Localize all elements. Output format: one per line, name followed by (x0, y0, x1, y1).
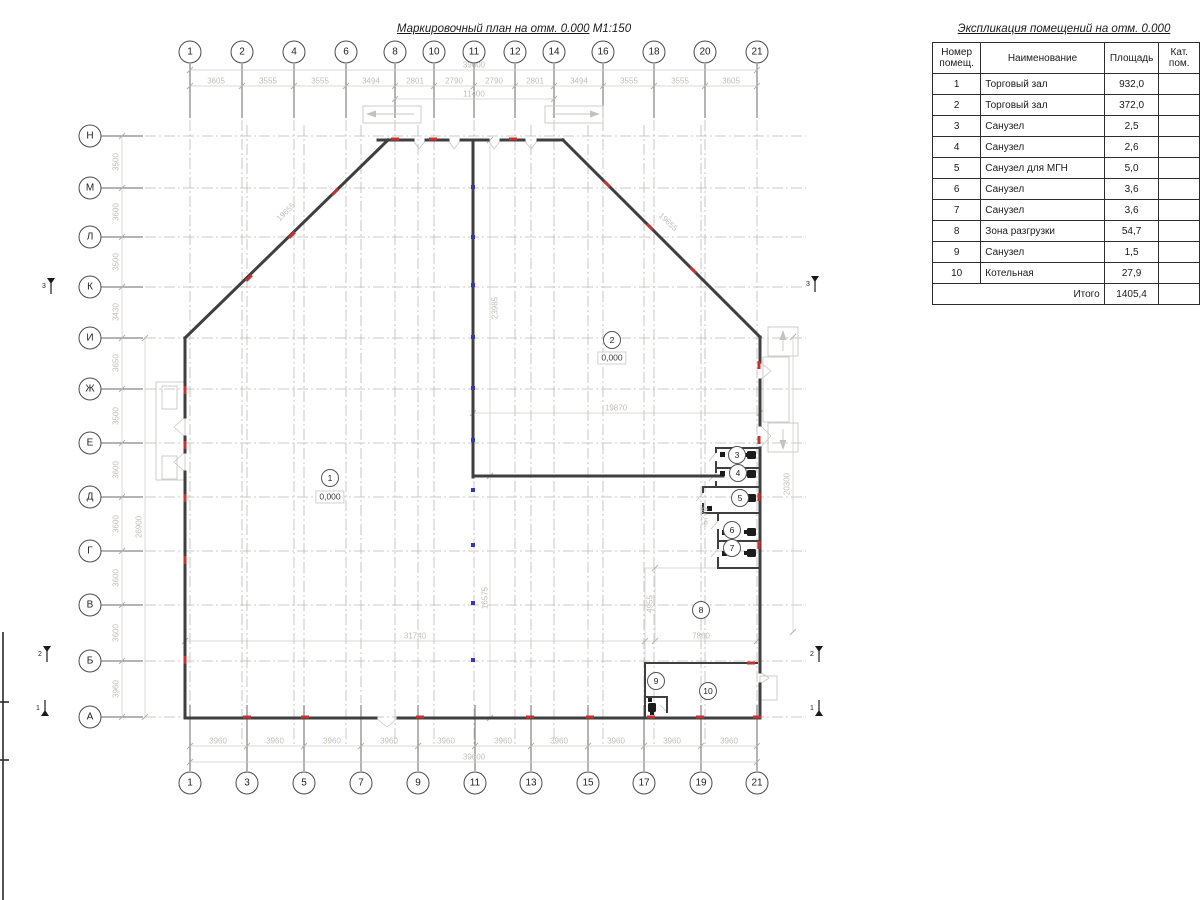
dim-label: 23985 (491, 297, 500, 319)
dim-label: 3600 (112, 515, 121, 533)
section-mark-arrow-icon (815, 646, 824, 662)
dim-label: 3960 (437, 737, 455, 746)
axis-bubble-bottom-3: 3 (236, 772, 259, 795)
column-marker-blue (471, 658, 475, 662)
axis-bubble-left-Н: Н (79, 125, 102, 148)
dim-label: 3960 (550, 737, 568, 746)
section-mark-number: 1 (810, 705, 814, 712)
wall-marker-red (747, 662, 755, 665)
grid-lines (101, 64, 806, 771)
dimension-lines (122, 70, 793, 762)
axis-bubble-top-14: 14 (543, 41, 566, 64)
section-mark-number: 2 (38, 651, 42, 658)
dim-label: 3650 (112, 354, 121, 372)
section-mark-arrow-icon (811, 276, 820, 292)
dim-label: 3555 (259, 77, 277, 86)
column-marker-blue (471, 235, 475, 239)
dim-label: 7860 (692, 632, 710, 641)
dim-label: 16575 (481, 587, 490, 609)
dim-label: 3600 (112, 569, 121, 587)
section-mark-arrow-icon (43, 646, 52, 662)
dim-label: 20300 (783, 473, 792, 495)
sheet-frame (0, 632, 9, 900)
wall-marker-red (391, 138, 399, 141)
wall-marker-red (758, 361, 761, 369)
elevation-mark: 0,000 (315, 491, 344, 504)
axis-bubble-left-Е: Е (79, 432, 102, 455)
axis-bubble-left-Ж: Ж (79, 378, 102, 401)
plan-graphics (0, 0, 1200, 900)
dim-label: 19870 (605, 404, 627, 413)
column-marker-blue (471, 185, 475, 189)
dim-label: 3960 (323, 737, 341, 746)
axis-bubble-top-10: 10 (423, 41, 446, 64)
wall-marker-red (184, 386, 187, 394)
axis-bubble-left-Б: Б (79, 650, 102, 673)
dim-label: 3555 (671, 77, 689, 86)
section-mark-2: 2 (38, 646, 52, 662)
wall-marker-red (301, 716, 309, 719)
axis-bubble-top-8: 8 (384, 41, 407, 64)
section-mark-1: 1 (36, 700, 50, 716)
column-marker-blue (471, 601, 475, 605)
dim-label: 3600 (112, 624, 121, 642)
room-bubble-7: 7 (723, 539, 741, 557)
axis-bubble-left-А: А (79, 706, 102, 729)
room-bubble-6: 6 (723, 521, 741, 539)
wall-marker-red (647, 716, 655, 719)
wall-marker-red (184, 441, 187, 449)
axis-bubble-bottom-5: 5 (293, 772, 316, 795)
column-marker-blue (471, 438, 475, 442)
dim-label: 39600 (463, 753, 485, 762)
axis-bubble-top-4: 4 (283, 41, 306, 64)
dim-label: 3500 (112, 407, 121, 425)
dim-label: 3960 (112, 680, 121, 698)
axis-bubble-left-В: В (79, 594, 102, 617)
dim-label: 3960 (209, 737, 227, 746)
section-mark-arrow-icon (47, 278, 56, 294)
axis-bubble-bottom-7: 7 (350, 772, 373, 795)
axis-bubble-left-М: М (79, 177, 102, 200)
dim-label: 5770 (701, 507, 710, 525)
floor-plan-sheet: Маркировочный план на отм. 0.000 М1:150 … (0, 0, 1200, 900)
axis-bubble-left-К: К (79, 276, 102, 299)
room-bubble-3: 3 (728, 446, 746, 464)
axis-bubble-top-12: 12 (504, 41, 527, 64)
dim-label: 2790 (445, 77, 463, 86)
dim-label: 31740 (404, 632, 426, 641)
dim-label: 11400 (463, 90, 485, 99)
dim-label: 26900 (135, 516, 144, 538)
wall-marker-red (758, 541, 761, 549)
dim-label: 3430 (112, 303, 121, 321)
dim-label: 3500 (112, 253, 121, 271)
axis-bubble-bottom-21: 21 (746, 772, 769, 795)
axis-bubble-left-Г: Г (79, 540, 102, 563)
wall-marker-red (416, 716, 424, 719)
dim-label: 3500 (112, 153, 121, 171)
dim-label: 2790 (485, 77, 503, 86)
dim-label: 3605 (207, 77, 225, 86)
dim-label: 3600 (112, 461, 121, 479)
axis-bubble-top-6: 6 (335, 41, 358, 64)
wall-marker-red (184, 556, 187, 564)
dim-label: 3605 (722, 77, 740, 86)
dim-label: 3960 (663, 737, 681, 746)
axis-bubble-top-1: 1 (179, 41, 202, 64)
dim-label: 3960 (607, 737, 625, 746)
axis-bubble-top-16: 16 (592, 41, 615, 64)
dim-label: 3960 (720, 737, 738, 746)
column-marker-blue (471, 283, 475, 287)
wall-marker-red (429, 138, 437, 141)
wall-marker-red (753, 716, 761, 719)
wall-marker-red (184, 656, 187, 664)
axis-bubble-bottom-19: 19 (690, 772, 713, 795)
wall-marker-red (526, 716, 534, 719)
section-mark-3: 3 (42, 278, 56, 294)
room-bubble-9: 9 (647, 672, 665, 690)
dim-label: 3555 (620, 77, 638, 86)
section-mark-number: 3 (806, 281, 810, 288)
dim-label: 3960 (494, 737, 512, 746)
section-mark-2: 2 (810, 646, 824, 662)
section-mark-number: 1 (36, 705, 40, 712)
column-marker-blue (471, 543, 475, 547)
room-bubble-1: 1 (321, 469, 339, 487)
wall-marker-red (696, 716, 704, 719)
room-bubble-4: 4 (729, 464, 747, 482)
dim-label: 2801 (526, 77, 544, 86)
dim-label: 3960 (266, 737, 284, 746)
axis-bubble-bottom-17: 17 (633, 772, 656, 795)
wall-marker-red (758, 436, 761, 444)
wall-marker-red (243, 716, 251, 719)
elevation-mark: 0,000 (597, 352, 626, 365)
axis-bubble-top-18: 18 (643, 41, 666, 64)
room-bubble-8: 8 (692, 601, 710, 619)
wall-marker-red (509, 138, 517, 141)
dim-label: 3494 (362, 77, 380, 86)
axis-bubble-bottom-1: 1 (179, 772, 202, 795)
axis-bubble-bottom-11: 11 (464, 772, 487, 795)
axis-bubble-bottom-9: 9 (407, 772, 430, 795)
room-bubble-10: 10 (699, 682, 717, 700)
dim-label: 3555 (311, 77, 329, 86)
axis-bubble-top-21: 21 (746, 41, 769, 64)
column-marker-blue (471, 386, 475, 390)
dim-label: 4955 (646, 595, 655, 613)
axis-bubble-left-Л: Л (79, 226, 102, 249)
column-marker-blue (471, 488, 475, 492)
wall-marker-red (586, 716, 594, 719)
section-mark-arrow-icon (41, 700, 50, 716)
dim-label: 3600 (112, 203, 121, 221)
dim-label: 3960 (380, 737, 398, 746)
axis-bubble-bottom-15: 15 (577, 772, 600, 795)
wall-marker-red (758, 493, 761, 501)
section-mark-number: 2 (810, 651, 814, 658)
axis-bubble-left-И: И (79, 327, 102, 350)
room-bubble-2: 2 (603, 331, 621, 349)
room-bubble-5: 5 (731, 489, 749, 507)
axis-bubble-top-2: 2 (231, 41, 254, 64)
section-mark-arrow-icon (815, 700, 824, 716)
dimension-ticks (119, 67, 796, 765)
axis-bubble-top-20: 20 (694, 41, 717, 64)
dim-label: 2801 (406, 77, 424, 86)
dim-label: 3494 (570, 77, 588, 86)
axis-bubble-bottom-13: 13 (520, 772, 543, 795)
column-marker-blue (471, 335, 475, 339)
section-mark-3: 3 (806, 276, 820, 292)
axis-bubble-top-11: 11 (463, 41, 486, 64)
axis-bubble-left-Д: Д (79, 486, 102, 509)
section-mark-1: 1 (810, 700, 824, 716)
wall-marker-red (184, 494, 187, 502)
section-mark-number: 3 (42, 283, 46, 290)
